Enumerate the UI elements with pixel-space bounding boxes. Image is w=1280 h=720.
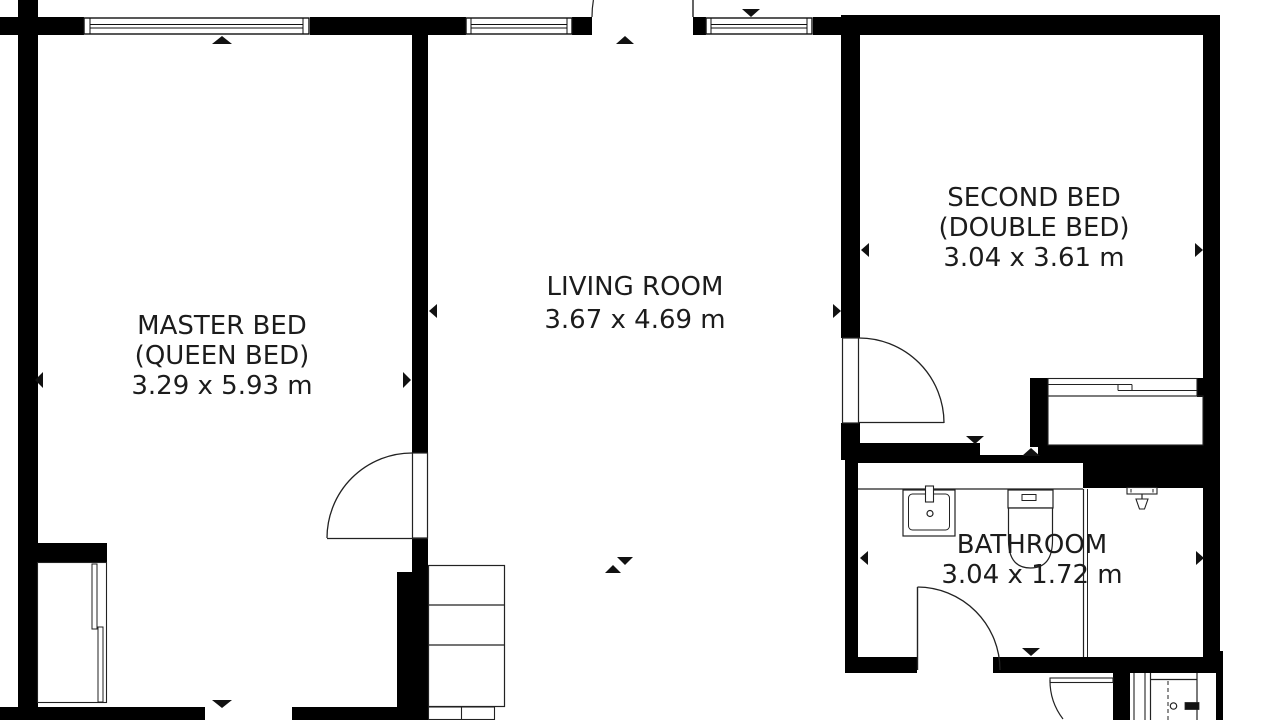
- bathroom-door-swing-icon: [918, 587, 1001, 670]
- shelving-unit-icon: [428, 566, 505, 720]
- window-icon: [466, 18, 572, 34]
- room-label-master-bed: MASTER BED (QUEEN BED) 3.29 x 5.93 m: [72, 311, 372, 401]
- room-name: SECOND BED: [884, 183, 1184, 213]
- room-dimensions: 3.67 x 4.69 m: [485, 304, 785, 337]
- wardrobe-sliding-doors-icon: [38, 563, 107, 703]
- shower-head-icon: [1127, 488, 1157, 510]
- balcony-door-swing-icon: [592, 0, 693, 17]
- room-label-bathroom: BATHROOM 3.04 x 1.72 m: [882, 530, 1182, 590]
- entry-door-icon: [1050, 673, 1199, 720]
- sink-icon: [903, 486, 955, 536]
- master-door-swing-icon: [327, 453, 428, 539]
- room-name: BATHROOM: [882, 530, 1182, 560]
- room-name: MASTER BED: [72, 311, 372, 341]
- floor-plan: MASTER BED (QUEEN BED) 3.29 x 5.93 m LIV…: [0, 0, 1280, 720]
- room-dimensions: 3.04 x 1.72 m: [882, 560, 1182, 590]
- room-dimensions: 3.29 x 5.93 m: [72, 371, 372, 401]
- room-dimensions: 3.04 x 3.61 m: [884, 243, 1184, 273]
- window-icon: [84, 18, 309, 34]
- second-bed-door-swing-icon: [843, 338, 945, 423]
- room-subtitle: (DOUBLE BED): [884, 213, 1184, 243]
- room-label-living-room: LIVING ROOM 3.67 x 4.69 m: [485, 271, 785, 337]
- window-icon: [706, 18, 812, 34]
- room-label-second-bed: SECOND BED (DOUBLE BED) 3.04 x 3.61 m: [884, 183, 1184, 273]
- room-subtitle: (QUEEN BED): [72, 341, 372, 371]
- wardrobe-sliding-doors-icon: [1048, 379, 1203, 446]
- room-name: LIVING ROOM: [485, 271, 785, 304]
